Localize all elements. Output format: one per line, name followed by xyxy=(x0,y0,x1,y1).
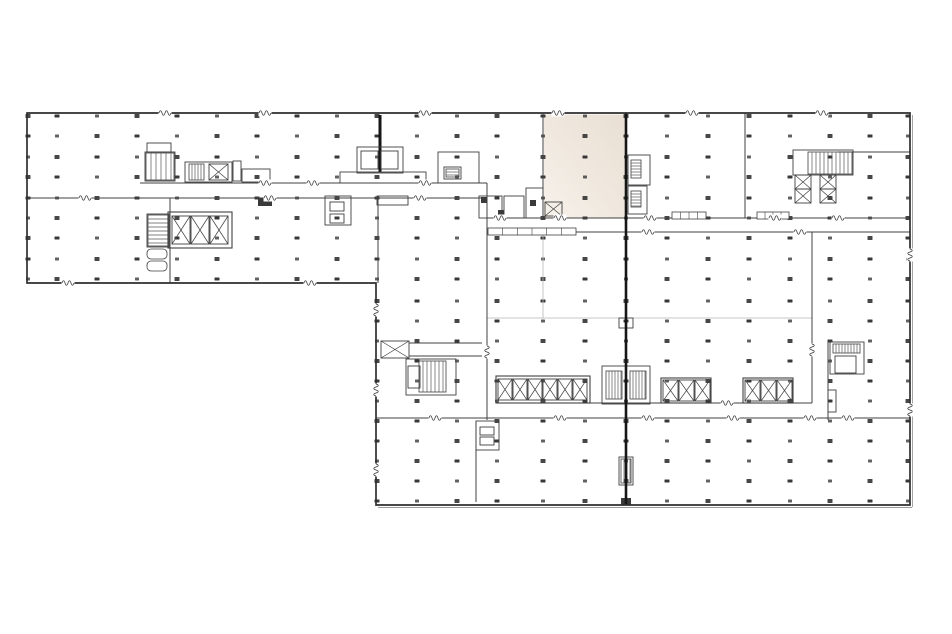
column-dot xyxy=(375,175,380,179)
column-dot xyxy=(95,176,99,179)
column-dot xyxy=(335,176,339,179)
column-dot xyxy=(295,237,300,240)
door-break xyxy=(832,215,845,222)
column-dot xyxy=(747,278,751,281)
column-dot xyxy=(747,419,752,423)
column-dot xyxy=(55,135,59,138)
floor-plan-viewer xyxy=(0,0,952,634)
door-break xyxy=(794,229,807,236)
column-dot xyxy=(665,115,670,118)
column-dot xyxy=(175,216,180,220)
column-dot xyxy=(135,156,139,159)
column-dot xyxy=(706,134,711,138)
door-break xyxy=(419,110,432,117)
column-dot xyxy=(665,440,669,443)
column-dot xyxy=(706,257,711,261)
column-dot xyxy=(828,439,833,443)
column-dot xyxy=(868,197,873,200)
column-dot xyxy=(335,278,340,281)
column-dot xyxy=(95,217,100,220)
column-dot xyxy=(495,479,500,483)
column-dot xyxy=(215,217,220,220)
column-dot xyxy=(415,237,420,240)
column-dot xyxy=(868,340,872,343)
column-dot xyxy=(747,175,752,179)
column-dot xyxy=(255,156,259,159)
column-dot xyxy=(55,237,60,240)
column-dot xyxy=(455,300,459,303)
column-dot xyxy=(868,440,873,443)
column-dot xyxy=(175,258,179,261)
column-dot xyxy=(215,176,219,179)
floor-plan-svg xyxy=(0,0,952,634)
column-dot xyxy=(665,197,669,200)
column-dot xyxy=(747,359,752,363)
door-break xyxy=(484,346,491,359)
column-dot xyxy=(747,479,752,483)
column-dot xyxy=(541,320,545,323)
column-dot xyxy=(415,277,420,281)
column-dot xyxy=(665,480,670,483)
column-dot xyxy=(495,359,500,363)
door-break xyxy=(816,110,829,117)
column-dot xyxy=(295,277,300,281)
column-dot xyxy=(706,499,711,503)
column-dot xyxy=(415,480,420,483)
column-dot xyxy=(583,278,588,281)
door-break xyxy=(159,110,172,117)
column-dot xyxy=(175,115,180,118)
column-dot xyxy=(55,258,59,261)
door-break xyxy=(642,229,655,236)
door-break xyxy=(264,195,277,202)
column-dot xyxy=(541,420,546,423)
column-dot xyxy=(828,480,832,483)
column-dot xyxy=(455,156,460,159)
column-dot xyxy=(583,176,587,179)
column-dot xyxy=(747,236,752,240)
column-dot xyxy=(665,500,669,503)
column-dot xyxy=(747,299,752,303)
column-dot xyxy=(375,258,380,261)
column-dot xyxy=(868,278,872,281)
column-dot xyxy=(495,135,500,138)
column-dot xyxy=(828,300,832,303)
column-dot xyxy=(415,380,419,383)
column-dot xyxy=(868,156,872,159)
door-break xyxy=(373,304,380,317)
column-dot xyxy=(706,156,711,159)
column-dot xyxy=(665,360,670,363)
column-dot xyxy=(135,175,140,179)
window-sill xyxy=(488,228,576,235)
column-dot xyxy=(706,480,710,483)
column-dot xyxy=(455,217,460,220)
column-dot xyxy=(335,217,340,220)
column-dot xyxy=(868,175,873,179)
column-dot xyxy=(583,134,588,138)
column-dot xyxy=(706,278,711,281)
column-dot xyxy=(95,115,99,118)
column-dot xyxy=(95,278,100,281)
door-break xyxy=(769,215,782,222)
column-dot xyxy=(541,339,546,343)
column-dot xyxy=(415,420,420,423)
column-dot xyxy=(255,217,259,220)
column-dot xyxy=(788,420,793,423)
column-dot xyxy=(495,299,500,303)
column-dot xyxy=(415,216,420,220)
column-dot xyxy=(175,277,180,281)
column-dot xyxy=(747,340,751,343)
column-dot xyxy=(706,319,711,323)
column-dot xyxy=(706,340,711,343)
column-dot xyxy=(788,115,793,118)
column-dot xyxy=(828,278,833,281)
column-dot xyxy=(828,237,832,240)
door-break xyxy=(259,110,272,117)
column-dot xyxy=(455,480,459,483)
column-dot xyxy=(788,176,793,179)
solid-block xyxy=(481,197,487,203)
column-dot xyxy=(868,419,873,423)
column-dot xyxy=(665,339,670,343)
column-dot xyxy=(95,156,100,159)
column-dot xyxy=(665,320,669,323)
column-dot xyxy=(455,340,460,343)
column-dot xyxy=(788,277,793,281)
door-break xyxy=(552,110,565,117)
background xyxy=(0,0,952,634)
column-dot xyxy=(583,499,588,503)
column-dot xyxy=(788,360,793,363)
column-dot xyxy=(868,380,873,383)
column-dot xyxy=(868,359,873,363)
column-dot xyxy=(55,277,60,281)
column-dot xyxy=(55,115,60,118)
column-dot xyxy=(788,440,792,443)
column-dot xyxy=(583,360,587,363)
column-dot xyxy=(868,320,873,323)
column-dot xyxy=(415,176,420,179)
column-dot xyxy=(215,156,220,159)
column-dot xyxy=(541,480,546,483)
column-dot xyxy=(788,135,792,138)
column-dot xyxy=(828,319,833,323)
door-break xyxy=(259,180,272,187)
column-dot xyxy=(583,257,588,261)
column-dot xyxy=(455,319,460,323)
door-break xyxy=(642,415,655,422)
door-break xyxy=(373,464,380,477)
column-dot xyxy=(747,500,752,503)
column-dot xyxy=(583,439,588,443)
column-dot xyxy=(706,439,711,443)
door-break xyxy=(809,344,816,357)
column-dot xyxy=(455,400,460,403)
column-dot xyxy=(868,258,873,261)
door-break xyxy=(62,280,75,287)
column-dot xyxy=(706,420,710,423)
column-dot xyxy=(788,459,793,463)
door-break xyxy=(907,249,914,262)
door-break xyxy=(494,215,507,222)
column-dot xyxy=(175,135,179,138)
column-dot xyxy=(747,440,752,443)
column-dot xyxy=(415,258,419,261)
column-dot xyxy=(541,459,546,463)
column-dot xyxy=(583,196,588,200)
column-dot xyxy=(665,300,670,303)
column-dot xyxy=(215,257,220,261)
door-break xyxy=(727,415,740,422)
column-dot xyxy=(583,156,588,159)
column-dot xyxy=(828,115,832,118)
door-break xyxy=(907,404,914,417)
column-dot xyxy=(455,460,460,463)
window-sill xyxy=(672,212,706,219)
column-dot xyxy=(583,300,587,303)
column-dot xyxy=(706,237,710,240)
column-dot xyxy=(583,480,587,483)
column-dot xyxy=(335,115,339,118)
column-dot xyxy=(495,278,499,281)
column-dot xyxy=(455,237,459,240)
column-dot xyxy=(335,134,340,138)
column-dot xyxy=(335,237,339,240)
door-break xyxy=(554,415,567,422)
column-dot xyxy=(135,258,140,261)
column-dot xyxy=(295,135,299,138)
column-dot xyxy=(255,278,259,281)
column-dot xyxy=(583,340,588,343)
column-dot xyxy=(665,277,670,281)
column-dot xyxy=(255,175,260,179)
column-dot xyxy=(455,115,459,118)
column-dot xyxy=(495,258,500,261)
column-dot xyxy=(255,135,260,138)
column-dot xyxy=(747,258,752,261)
column-dot xyxy=(295,115,300,118)
column-dot xyxy=(95,237,99,240)
column-dot xyxy=(583,115,587,118)
column-dot xyxy=(788,320,792,323)
column-dot xyxy=(295,155,300,159)
column-dot xyxy=(747,114,752,118)
column-dot xyxy=(788,339,793,343)
column-dot xyxy=(255,236,260,240)
column-dot xyxy=(55,216,60,220)
column-dot xyxy=(788,237,793,240)
column-dot xyxy=(215,134,220,138)
column-dot xyxy=(95,257,100,261)
door-break xyxy=(79,195,92,202)
column-dot xyxy=(828,420,832,423)
column-dot xyxy=(415,440,419,443)
column-dot xyxy=(215,278,220,281)
column-dot xyxy=(215,237,219,240)
door-break xyxy=(554,215,567,222)
column-dot xyxy=(868,299,873,303)
solid-block xyxy=(530,200,536,206)
column-dot xyxy=(375,236,380,240)
column-dot xyxy=(706,176,710,179)
door-break xyxy=(429,415,442,422)
column-dot xyxy=(706,300,710,303)
column-dot xyxy=(415,320,419,323)
column-dot xyxy=(583,420,587,423)
door-break xyxy=(804,415,817,422)
column-dot xyxy=(135,236,140,240)
column-dot xyxy=(135,217,139,220)
column-dot xyxy=(541,440,545,443)
column-dot xyxy=(455,257,460,261)
column-dot xyxy=(415,300,420,303)
column-dot xyxy=(747,320,752,323)
door-break xyxy=(304,280,317,287)
door-break xyxy=(842,415,855,422)
column-dot xyxy=(788,197,792,200)
stair-hatch xyxy=(631,160,641,178)
door-break xyxy=(373,384,380,397)
column-dot xyxy=(415,500,419,503)
door-break xyxy=(307,180,320,187)
column-dot xyxy=(415,459,420,463)
door-break xyxy=(686,110,699,117)
column-dot xyxy=(828,176,832,179)
door-break xyxy=(721,400,734,407)
column-dot xyxy=(868,479,873,483)
column-dot xyxy=(415,155,420,159)
column-dot xyxy=(583,319,588,323)
column-dot xyxy=(495,500,500,503)
column-dot xyxy=(665,459,670,463)
column-dot xyxy=(665,237,670,240)
column-dot xyxy=(706,115,710,118)
column-dot xyxy=(788,258,792,261)
column-dot xyxy=(135,278,139,281)
column-dot xyxy=(747,197,752,200)
column-dot xyxy=(828,134,833,138)
column-dot xyxy=(747,156,751,159)
column-dot xyxy=(335,156,340,159)
column-dot xyxy=(295,176,300,179)
column-dot xyxy=(868,400,872,403)
column-dot xyxy=(215,115,219,118)
column-dot xyxy=(706,196,711,200)
column-dot xyxy=(455,134,460,138)
column-dot xyxy=(415,399,420,403)
column-dot xyxy=(495,175,500,179)
column-dot xyxy=(495,197,500,200)
column-dot xyxy=(495,156,499,159)
column-dot xyxy=(788,500,792,503)
column-dot xyxy=(747,460,751,463)
column-dot xyxy=(495,236,500,240)
column-dot xyxy=(868,500,873,503)
column-dot xyxy=(495,340,499,343)
column-dot xyxy=(455,420,459,423)
column-dot xyxy=(583,237,587,240)
column-dot xyxy=(788,300,793,303)
column-dot xyxy=(55,176,60,179)
column-dot xyxy=(868,135,873,138)
column-dot xyxy=(788,155,793,159)
column-dot xyxy=(868,460,872,463)
column-dot xyxy=(541,500,545,503)
column-dot xyxy=(135,114,140,118)
column-dot xyxy=(706,360,710,363)
column-dot xyxy=(415,339,420,343)
column-dot xyxy=(335,257,340,261)
column-dot xyxy=(495,320,500,323)
column-dot xyxy=(828,257,833,261)
column-dot xyxy=(868,114,873,118)
column-dot xyxy=(665,176,670,179)
column-dot xyxy=(706,460,711,463)
column-dot xyxy=(495,460,499,463)
column-dot xyxy=(295,216,300,220)
column-dot xyxy=(495,114,500,118)
column-dot xyxy=(868,236,873,240)
column-dot xyxy=(55,155,60,159)
column-dot xyxy=(665,420,670,423)
column-dot xyxy=(583,460,588,463)
column-dot xyxy=(828,499,833,503)
column-dot xyxy=(788,480,793,483)
column-dot xyxy=(665,155,670,159)
column-dot xyxy=(455,439,460,443)
door-break xyxy=(419,180,432,187)
column-dot xyxy=(255,258,260,261)
door-break xyxy=(414,195,427,202)
column-dot xyxy=(455,278,460,281)
column-dot xyxy=(747,135,752,138)
column-dot xyxy=(95,134,100,138)
column-dot xyxy=(415,135,419,138)
column-dot xyxy=(295,258,299,261)
column-dot xyxy=(665,135,669,138)
column-dot xyxy=(541,360,546,363)
column-dot xyxy=(455,499,460,503)
column-dot xyxy=(828,460,833,463)
canvas-background xyxy=(0,0,952,634)
column-dot xyxy=(135,135,140,138)
column-dot xyxy=(455,379,460,383)
door-break xyxy=(644,215,657,222)
column-dot xyxy=(665,258,669,261)
